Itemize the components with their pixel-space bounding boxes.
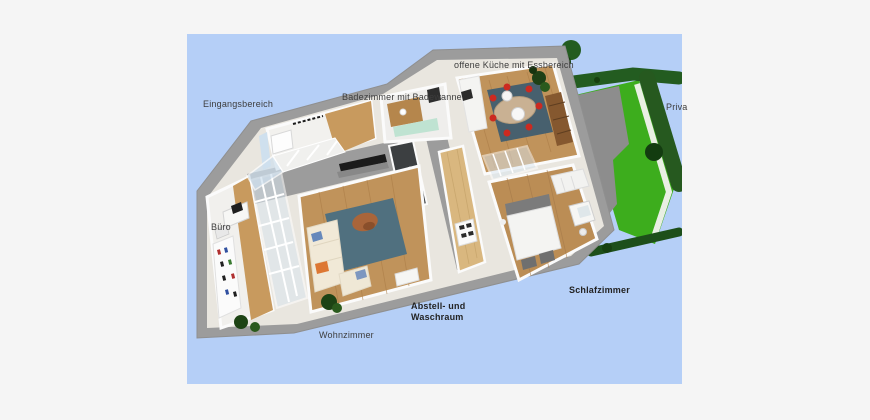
nightstand: [500, 219, 506, 225]
pendant-lamp: [512, 108, 525, 121]
bathroom-sink: [400, 109, 406, 115]
floorplan-3d-image[interactable]: EingangsbereichBadezimmer mit Badewanneo…: [187, 34, 682, 384]
storage-shelf: [455, 219, 477, 246]
hedge-bottom-bush: [602, 243, 612, 253]
office-plant: [250, 322, 260, 332]
hedge-speck: [594, 77, 600, 83]
living-plant: [332, 303, 342, 313]
office-plant: [234, 315, 248, 329]
floorplan-3d-render: [187, 34, 682, 384]
garden-bush: [645, 143, 663, 161]
page-background: EingangsbereichBadezimmer mit Badewanneo…: [0, 0, 870, 420]
kitchen-plant: [529, 66, 537, 74]
kitchen-plant: [540, 82, 550, 92]
vanity-stool: [580, 229, 587, 236]
pendant-lamp: [502, 91, 512, 101]
